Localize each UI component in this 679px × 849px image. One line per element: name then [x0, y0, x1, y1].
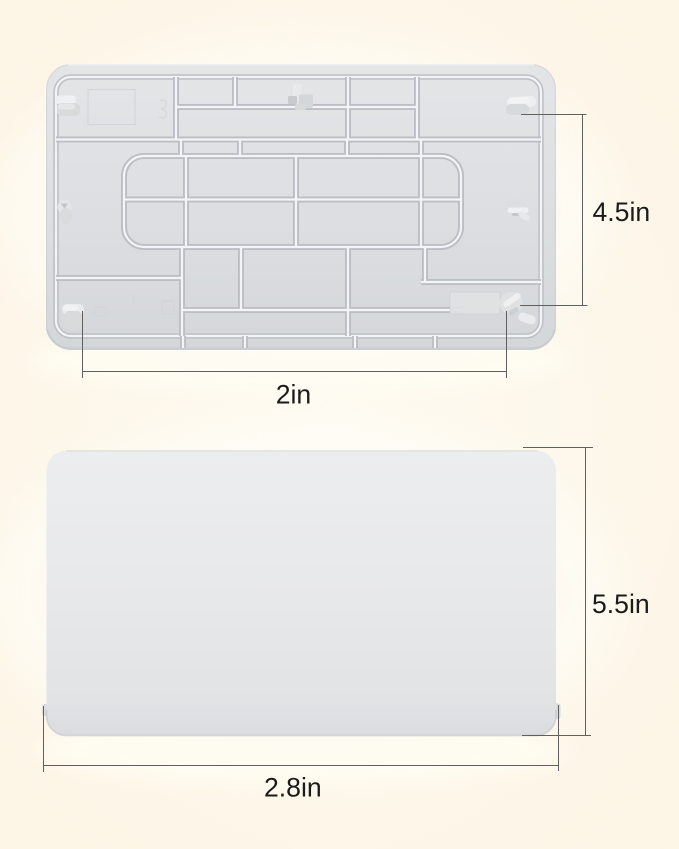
svg-text:5.5in: 5.5in	[592, 589, 650, 619]
svg-text:2.8in: 2.8in	[264, 773, 322, 803]
svg-text:4.5in: 4.5in	[593, 197, 651, 227]
svg-text:2in: 2in	[276, 380, 312, 410]
